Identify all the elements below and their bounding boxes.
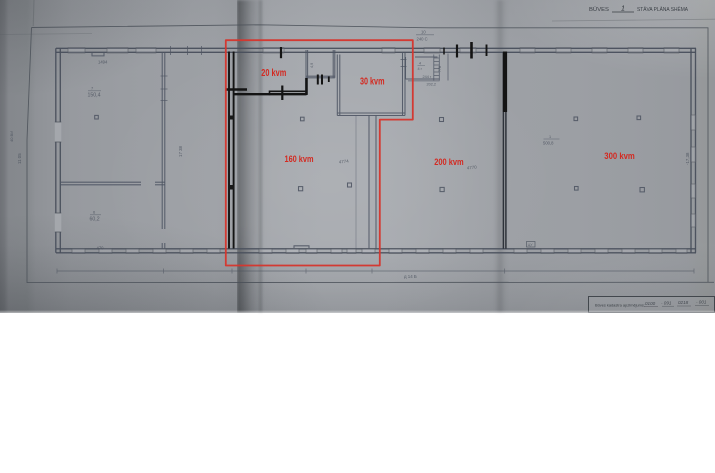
svg-text:д 14 Б: д 14 Б: [404, 274, 417, 279]
svg-text:202,2: 202,2: [427, 83, 437, 87]
svg-text:17 38: 17 38: [178, 145, 183, 157]
svg-text:244 г: 244 г: [423, 75, 432, 79]
svg-text:20 kvm: 20 kvm: [261, 68, 286, 79]
svg-text:4 г: 4 г: [418, 67, 423, 71]
svg-text:1494: 1494: [98, 60, 108, 65]
svg-text:4: 4: [419, 62, 421, 66]
svg-text:7: 7: [91, 86, 94, 91]
svg-text:11 05: 11 05: [17, 153, 22, 164]
svg-text:0100: 0100: [645, 301, 656, 306]
svg-text:200 kvm: 200 kvm: [434, 157, 464, 168]
svg-text:STĀVA PLĀNA SHĒMA: STĀVA PLĀNA SHĒMA: [637, 6, 688, 13]
svg-text:- 091: - 091: [661, 301, 672, 306]
svg-text:30 kvm: 30 kvm: [360, 76, 385, 87]
svg-text:- 001: - 001: [696, 300, 707, 305]
svg-text:ЦУ: ЦУ: [528, 243, 534, 247]
svg-text:240 С: 240 С: [417, 36, 428, 41]
svg-text:10: 10: [421, 30, 426, 35]
svg-text:150,4: 150,4: [88, 92, 101, 98]
svg-text:Būves kadastra apzīmējums:: Būves kadastra apzīmējums:: [595, 303, 645, 308]
svg-text:4770: 4770: [467, 164, 478, 170]
svg-text:60,2: 60,2: [90, 216, 100, 222]
svg-text:160 kvm: 160 kvm: [285, 154, 314, 165]
svg-text:0218: 0218: [678, 300, 689, 305]
svg-text:1: 1: [621, 5, 625, 12]
svg-text:BŪVES: BŪVES: [589, 6, 609, 13]
svg-text:4,9: 4,9: [310, 63, 314, 68]
svg-text:6: 6: [93, 210, 96, 215]
svg-text:470: 470: [97, 246, 105, 251]
svg-text:40 ВИ: 40 ВИ: [9, 131, 14, 142]
svg-text:778: 778: [438, 66, 442, 72]
svg-text:1: 1: [549, 135, 551, 139]
svg-text:300 kvm: 300 kvm: [604, 151, 635, 161]
svg-text:500,8: 500,8: [543, 141, 554, 146]
svg-text:-17,38: -17,38: [685, 152, 690, 165]
svg-text:4774: 4774: [339, 158, 350, 164]
